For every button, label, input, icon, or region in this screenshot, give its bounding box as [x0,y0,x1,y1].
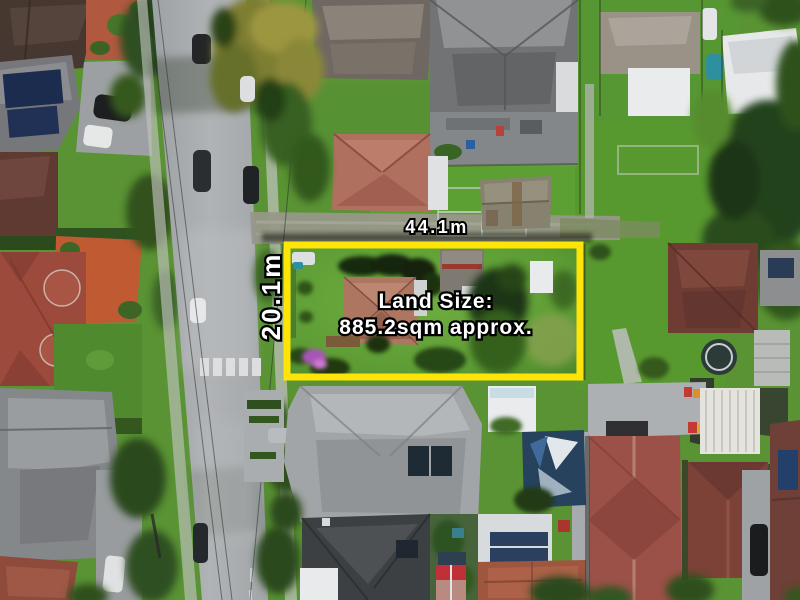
svg-text:Land Size:: Land Size: [378,290,493,313]
svg-text:885.2sqm approx.: 885.2sqm approx. [339,316,532,339]
svg-text:20.1m: 20.1m [256,252,286,341]
svg-text:44.1m: 44.1m [405,217,469,237]
